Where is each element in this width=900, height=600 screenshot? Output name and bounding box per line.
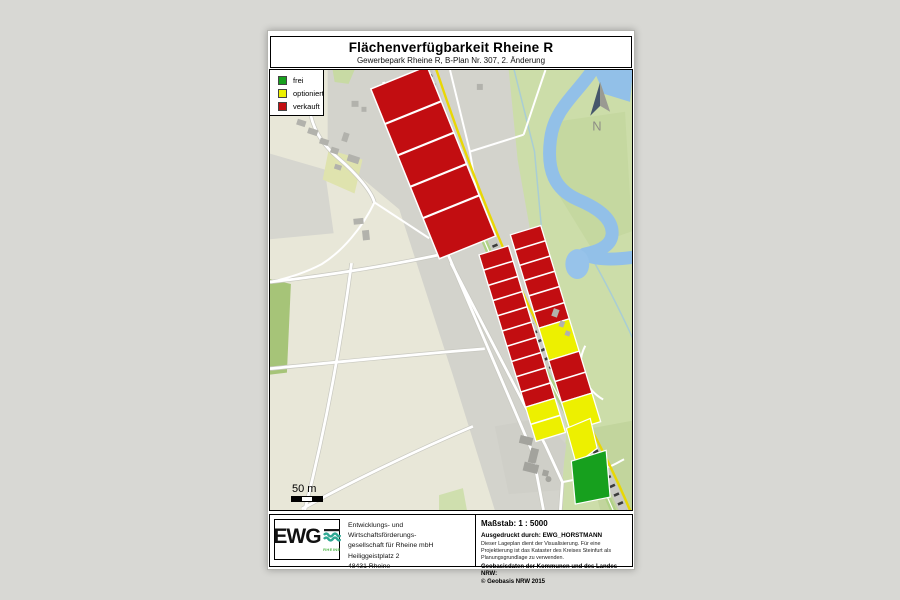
- scale-bar-label: 50 m: [292, 483, 341, 495]
- legend-label: optioniert: [293, 89, 324, 98]
- scale-bar-graphic: [291, 496, 323, 502]
- plan-document: Flächenverfügbarkeit Rheine R Gewerbepar…: [267, 30, 635, 570]
- logo-wave-icon: RHEINE: [323, 527, 341, 552]
- optioned-color-swatch: [278, 89, 287, 98]
- footer-meta-cell: Maßstab: 1 : 5000 Ausgedruckt durch: EWG…: [476, 515, 632, 566]
- address-line: Entwicklungs- und Wirtschaftsförderungs-: [348, 521, 471, 541]
- legend-item-sold: verkauft: [278, 100, 323, 113]
- logo-subtext: RHEINE: [323, 547, 341, 552]
- logo-text: EWG: [273, 527, 320, 547]
- page-title: Flächenverfügbarkeit Rheine R: [271, 40, 631, 55]
- free-color-swatch: [278, 76, 287, 85]
- site-map: N: [270, 70, 632, 510]
- legend-item-optioned: optioniert: [278, 87, 323, 100]
- north-label: N: [592, 119, 601, 134]
- pond: [565, 249, 589, 279]
- map-scale-text: Maßstab: 1 : 5000: [481, 519, 627, 528]
- ewg-logo: EWG RHEINE: [274, 519, 340, 560]
- scale-bar: 50 m: [291, 483, 341, 502]
- address-line: Heiliggeistplatz 2: [348, 552, 471, 562]
- address-line: 48431 Rheine: [348, 562, 471, 572]
- printed-by-text: Ausgedruckt durch: EWG_HORSTMANN: [481, 532, 627, 539]
- address-line: gesellschaft für Rheine mbH: [348, 541, 471, 551]
- geobasis-credit: Geobasisdaten der Kommunen und des Lande…: [481, 564, 627, 580]
- footer-publisher-cell: EWG RHEINE Entwicklungs- und Wirtschafts: [270, 515, 476, 566]
- legend-label: verkauft: [293, 102, 320, 111]
- desktop-background: Flächenverfügbarkeit Rheine R Gewerbepar…: [0, 0, 900, 600]
- disclaimer-text: Dieser Lageplan dient der Visualisierung…: [481, 541, 627, 562]
- legend-label: frei: [293, 76, 303, 85]
- map-title-box: Flächenverfügbarkeit Rheine R Gewerbepar…: [270, 36, 632, 68]
- legend-item-free: frei: [278, 74, 323, 87]
- copyright-text: © Geobasis NRW 2015: [481, 579, 627, 587]
- sold-color-swatch: [278, 102, 287, 111]
- footer: EWG RHEINE Entwicklungs- und Wirtschafts: [269, 514, 633, 567]
- page-subtitle: Gewerbepark Rheine R, B-Plan Nr. 307, 2.…: [271, 56, 631, 65]
- map-canvas: N: [269, 69, 633, 511]
- publisher-address: Entwicklungs- und Wirtschaftsförderungs-…: [340, 519, 471, 562]
- legend: frei optioniert verkauft: [269, 69, 324, 116]
